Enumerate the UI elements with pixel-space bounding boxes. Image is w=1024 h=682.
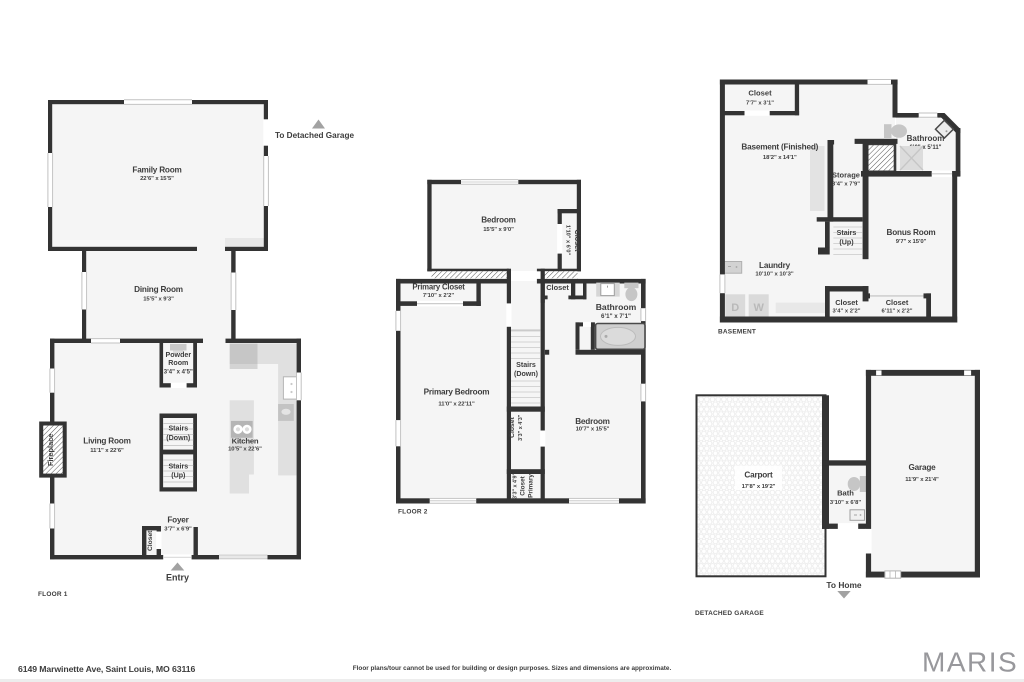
svg-text:(Up): (Up) (171, 472, 186, 480)
svg-text:3’4" x 7’9": 3’4" x 7’9" (832, 182, 860, 188)
svg-text:Closet: Closet (509, 416, 516, 438)
svg-text:3’7" x 6’9": 3’7" x 6’9" (164, 527, 192, 533)
svg-text:Bedroom: Bedroom (575, 417, 610, 426)
svg-text:3’4" x 4’5": 3’4" x 4’5" (164, 369, 193, 375)
svg-text:18’2" x 14’1": 18’2" x 14’1" (763, 155, 797, 161)
svg-text:10’5" x 22’6": 10’5" x 22’6" (228, 447, 262, 453)
svg-text:Basement (Finished): Basement (Finished) (741, 143, 818, 152)
svg-text:Closet: Closet (748, 89, 772, 98)
svg-text:6’1" x 7’1": 6’1" x 7’1" (601, 313, 631, 320)
svg-text:Primary: Primary (528, 474, 535, 498)
svg-text:Floor plans/tour cannot be use: Floor plans/tour cannot be used for buil… (353, 665, 672, 672)
svg-text:11’1" x 22’6": 11’1" x 22’6" (90, 448, 124, 454)
svg-text:Carport: Carport (744, 471, 773, 480)
svg-text:Laundry: Laundry (759, 261, 791, 270)
svg-text:(Up): (Up) (839, 239, 854, 247)
svg-text:D: D (731, 302, 739, 314)
svg-text:(Down): (Down) (166, 434, 191, 442)
svg-text:11’9" x 21’4": 11’9" x 21’4" (905, 477, 939, 483)
svg-text:10’10" x 10’3": 10’10" x 10’3" (755, 271, 794, 277)
svg-text:7’10" x 2’2": 7’10" x 2’2" (423, 293, 455, 299)
svg-text:15’5" x 9’3": 15’5" x 9’3" (143, 297, 174, 303)
svg-text:1’10" x 6’0": 1’10" x 6’0" (565, 225, 571, 256)
svg-text:Kitchen: Kitchen (232, 437, 259, 446)
svg-text:Storage: Storage (832, 171, 860, 180)
svg-text:Bathroom: Bathroom (596, 302, 637, 312)
svg-text:Living Room: Living Room (83, 437, 130, 446)
svg-text:Entry: Entry (166, 573, 189, 583)
svg-text:DETACHED GARAGE: DETACHED GARAGE (695, 610, 764, 617)
svg-text:Closet: Closet (835, 298, 858, 307)
svg-text:10’7" x 15’5": 10’7" x 15’5" (576, 427, 610, 433)
svg-text:FLOOR 2: FLOOR 2 (398, 509, 428, 516)
svg-text:3’3" x 4’3": 3’3" x 4’3" (518, 414, 524, 441)
svg-text:3’3" x 4’9": 3’3" x 4’9" (513, 473, 519, 500)
svg-text:Stairs: Stairs (168, 463, 188, 471)
svg-text:6149 Marwinette Ave, Saint Lou: 6149 Marwinette Ave, Saint Louis, MO 631… (18, 664, 195, 674)
svg-text:Bonus Room: Bonus Room (887, 228, 936, 237)
svg-text:BASEMENT: BASEMENT (718, 329, 756, 336)
svg-text:15’5" x 9’0": 15’5" x 9’0" (483, 227, 514, 233)
svg-text:W: W (754, 302, 765, 314)
svg-text:Family Room: Family Room (132, 166, 181, 175)
svg-text:3’10" x 6’8": 3’10" x 6’8" (830, 500, 862, 506)
svg-text:Bedroom: Bedroom (481, 216, 516, 225)
svg-text:Closet: Closet (886, 298, 909, 307)
svg-text:Primary Bedroom: Primary Bedroom (424, 388, 490, 397)
svg-text:Stairs: Stairs (516, 361, 536, 369)
svg-text:Closet: Closet (520, 475, 527, 495)
svg-text:11’0" x 22’11": 11’0" x 22’11" (438, 401, 475, 407)
svg-text:7’7" x 3’1": 7’7" x 3’1" (746, 100, 774, 106)
svg-text:(Down): (Down) (514, 370, 539, 378)
svg-text:Stairs: Stairs (168, 425, 188, 433)
svg-text:22’6" x 15’5": 22’6" x 15’5" (140, 176, 174, 182)
svg-text:MARIS: MARIS (922, 647, 1018, 678)
svg-text:To Detached Garage: To Detached Garage (275, 131, 354, 140)
svg-text:17’8" x 19’2": 17’8" x 19’2" (742, 484, 776, 490)
svg-text:Stairs: Stairs (837, 229, 857, 237)
svg-text:3’4" x 2’2": 3’4" x 2’2" (832, 309, 860, 315)
svg-text:FLOOR 1: FLOOR 1 (38, 591, 68, 598)
svg-text:Closet: Closet (147, 530, 154, 551)
svg-text:9’7" x 15’0": 9’7" x 15’0" (896, 239, 927, 245)
svg-text:Dining Room: Dining Room (134, 285, 183, 294)
svg-text:Bathroom: Bathroom (907, 134, 945, 143)
svg-text:Closet: Closet (573, 230, 582, 253)
svg-text:Room: Room (168, 359, 188, 367)
svg-text:Bath: Bath (837, 488, 854, 497)
svg-text:Fireplace: Fireplace (46, 434, 55, 466)
svg-text:Closet: Closet (546, 283, 569, 292)
svg-text:Garage: Garage (908, 463, 936, 472)
svg-text:6’11" x 2’2": 6’11" x 2’2" (882, 309, 913, 315)
svg-text:Powder: Powder (165, 351, 191, 359)
svg-text:To Home: To Home (826, 580, 862, 590)
svg-text:Primary Closet: Primary Closet (412, 283, 465, 292)
svg-text:Foyer: Foyer (167, 516, 189, 525)
